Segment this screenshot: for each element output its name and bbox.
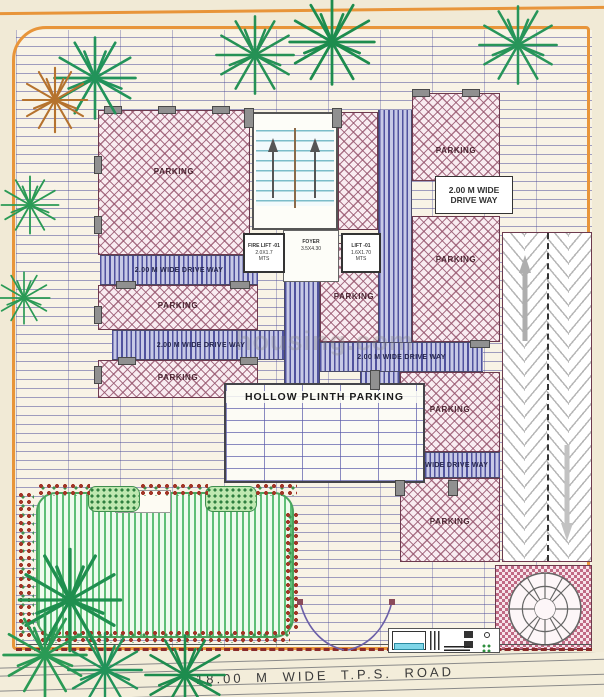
tree-icon: [476, 3, 560, 87]
column: [116, 281, 136, 289]
column: [240, 357, 258, 365]
tree-icon: [0, 174, 61, 236]
column: [244, 108, 254, 128]
tree-icon: [20, 65, 90, 135]
facility-strip: [388, 628, 500, 653]
plant-icon: [481, 643, 492, 652]
lift: LIFT -01 1.6X1.70 MTS: [341, 233, 381, 273]
tree-icon: [65, 630, 145, 697]
parking-area: PARKING: [412, 93, 500, 181]
watermark: housing.com: [235, 326, 475, 357]
bench-icon: [444, 644, 470, 651]
parking-label: PARKING: [401, 517, 499, 526]
paved-plaza: [495, 565, 592, 650]
parking-label: PARKING: [99, 167, 249, 176]
column: [370, 370, 380, 390]
driveway-callout-line1: 2.00 M WIDE: [436, 185, 512, 195]
fire-lift-unit: MTS: [245, 256, 283, 263]
shrub: [205, 486, 257, 512]
entrance-gate: [296, 598, 396, 652]
parking-label: PARKING: [413, 146, 499, 155]
column: [395, 480, 405, 496]
flower-bed: [255, 483, 297, 496]
column: [412, 89, 430, 97]
ramp-down-arrow-icon: [559, 443, 575, 543]
shrub: [88, 486, 140, 512]
column: [332, 108, 342, 128]
tree-icon: [142, 632, 228, 697]
driveway-callout: 2.00 M WIDE DRIVE WAY: [435, 176, 513, 214]
car-ramp: [502, 232, 592, 562]
cabin-counter: [394, 643, 424, 650]
stair-up-arrow-icon: [308, 136, 322, 200]
parking-area: PARKING: [98, 110, 250, 255]
lamp-icon: [484, 632, 490, 638]
tree-icon: [213, 13, 297, 97]
column: [212, 106, 230, 114]
stair-up-arrow-icon: [266, 136, 280, 200]
foyer: FOYER 3.5X4.30: [283, 230, 339, 282]
column: [462, 89, 480, 97]
parking-label: PARKING: [413, 255, 499, 264]
stair-divider: [294, 128, 296, 208]
parking-label: PARKING: [99, 373, 257, 382]
driveway-callout-line2: DRIVE WAY: [436, 195, 512, 205]
column: [230, 281, 250, 289]
ramp-centerline: [547, 233, 549, 561]
column: [448, 480, 458, 496]
grate: [430, 631, 442, 650]
hollow-plinth-parking: HOLLOW PLINTH PARKING: [224, 383, 425, 483]
column: [94, 216, 102, 234]
site-plan: PARKING PARKING PARKING PARKING PARKING …: [0, 0, 604, 697]
parking-area: PARKING: [412, 216, 500, 342]
fire-lift-name: FIRE LIFT -01: [245, 243, 283, 250]
column: [94, 156, 102, 174]
column: [94, 306, 102, 324]
ramp-up-arrow-icon: [517, 253, 533, 343]
tree-icon: [0, 270, 52, 326]
parking-label: PARKING: [99, 301, 257, 310]
stair-core: [252, 112, 338, 230]
column: [118, 357, 136, 365]
table-icon: [464, 631, 473, 638]
flower-bed: [140, 483, 208, 496]
lift-unit: MTS: [343, 256, 379, 263]
column: [158, 106, 176, 114]
column: [94, 366, 102, 384]
foyer-size: 3.5X4.30: [284, 246, 338, 253]
fire-lift: FIRE LIFT -01 2.0X1.7 MTS: [243, 233, 285, 273]
tree-icon: [286, 0, 378, 88]
circular-paving: [506, 570, 584, 648]
parking-area: [338, 112, 378, 230]
security-cabin: [392, 631, 426, 650]
hollow-plinth-label: HOLLOW PLINTH PARKING: [226, 391, 423, 403]
parking-area: PARKING: [98, 285, 258, 330]
driveway-band: [378, 110, 412, 342]
flower-bed: [38, 483, 90, 496]
